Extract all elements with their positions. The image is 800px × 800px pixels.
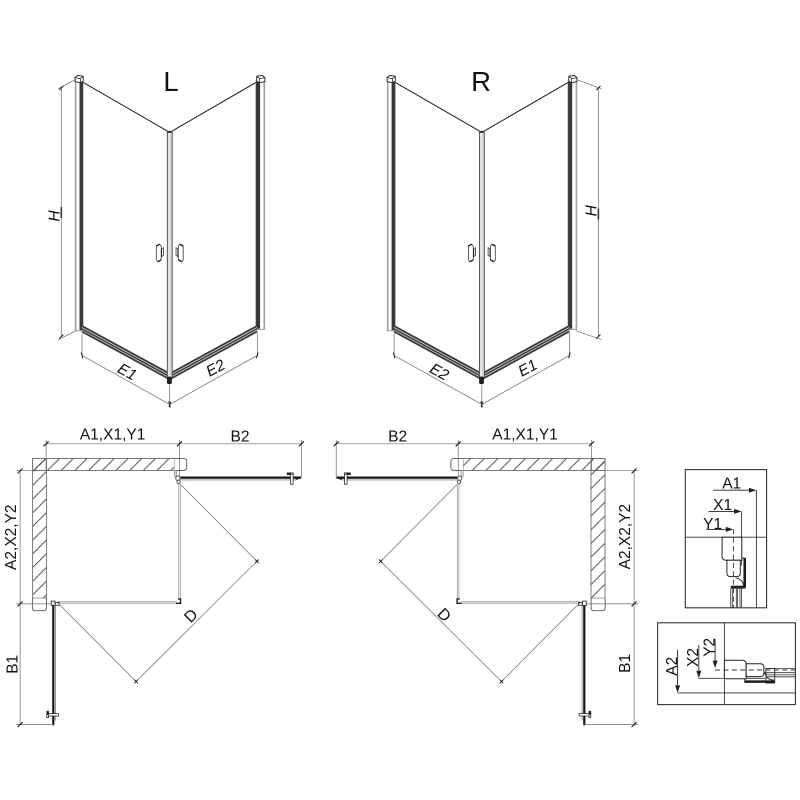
svg-text:R: R (471, 66, 491, 97)
svg-text:H: H (583, 204, 600, 216)
svg-text:Y2: Y2 (701, 638, 718, 657)
svg-text:B2: B2 (388, 428, 407, 445)
svg-text:A1,X1,Y1: A1,X1,Y1 (492, 427, 558, 444)
svg-text:A2,X2,Y2: A2,X2,Y2 (3, 504, 20, 570)
svg-text:L: L (163, 66, 178, 97)
svg-text:A2: A2 (664, 657, 681, 676)
svg-text:X2: X2 (685, 648, 702, 667)
svg-text:B1: B1 (5, 655, 22, 674)
svg-text:A1,X1,Y1: A1,X1,Y1 (80, 427, 146, 444)
svg-text:Y1: Y1 (703, 516, 722, 533)
svg-text:B1: B1 (617, 654, 634, 673)
svg-text:H: H (46, 210, 63, 222)
svg-text:A2,X2,Y2: A2,X2,Y2 (617, 504, 634, 570)
svg-text:B2: B2 (231, 428, 250, 445)
